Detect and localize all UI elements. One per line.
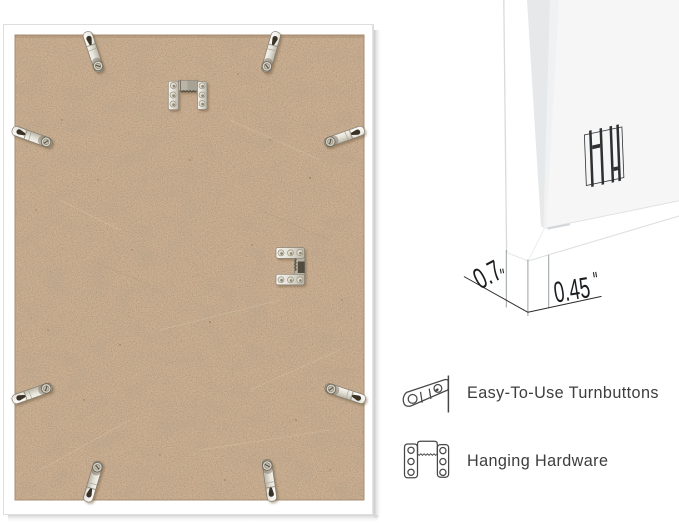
svg-text:0.45: 0.45 bbox=[552, 272, 593, 310]
svg-text:Hanging Hardware: Hanging Hardware bbox=[467, 452, 608, 470]
svg-text:Easy-To-Use Turnbuttons: Easy-To-Use Turnbuttons bbox=[467, 384, 659, 402]
